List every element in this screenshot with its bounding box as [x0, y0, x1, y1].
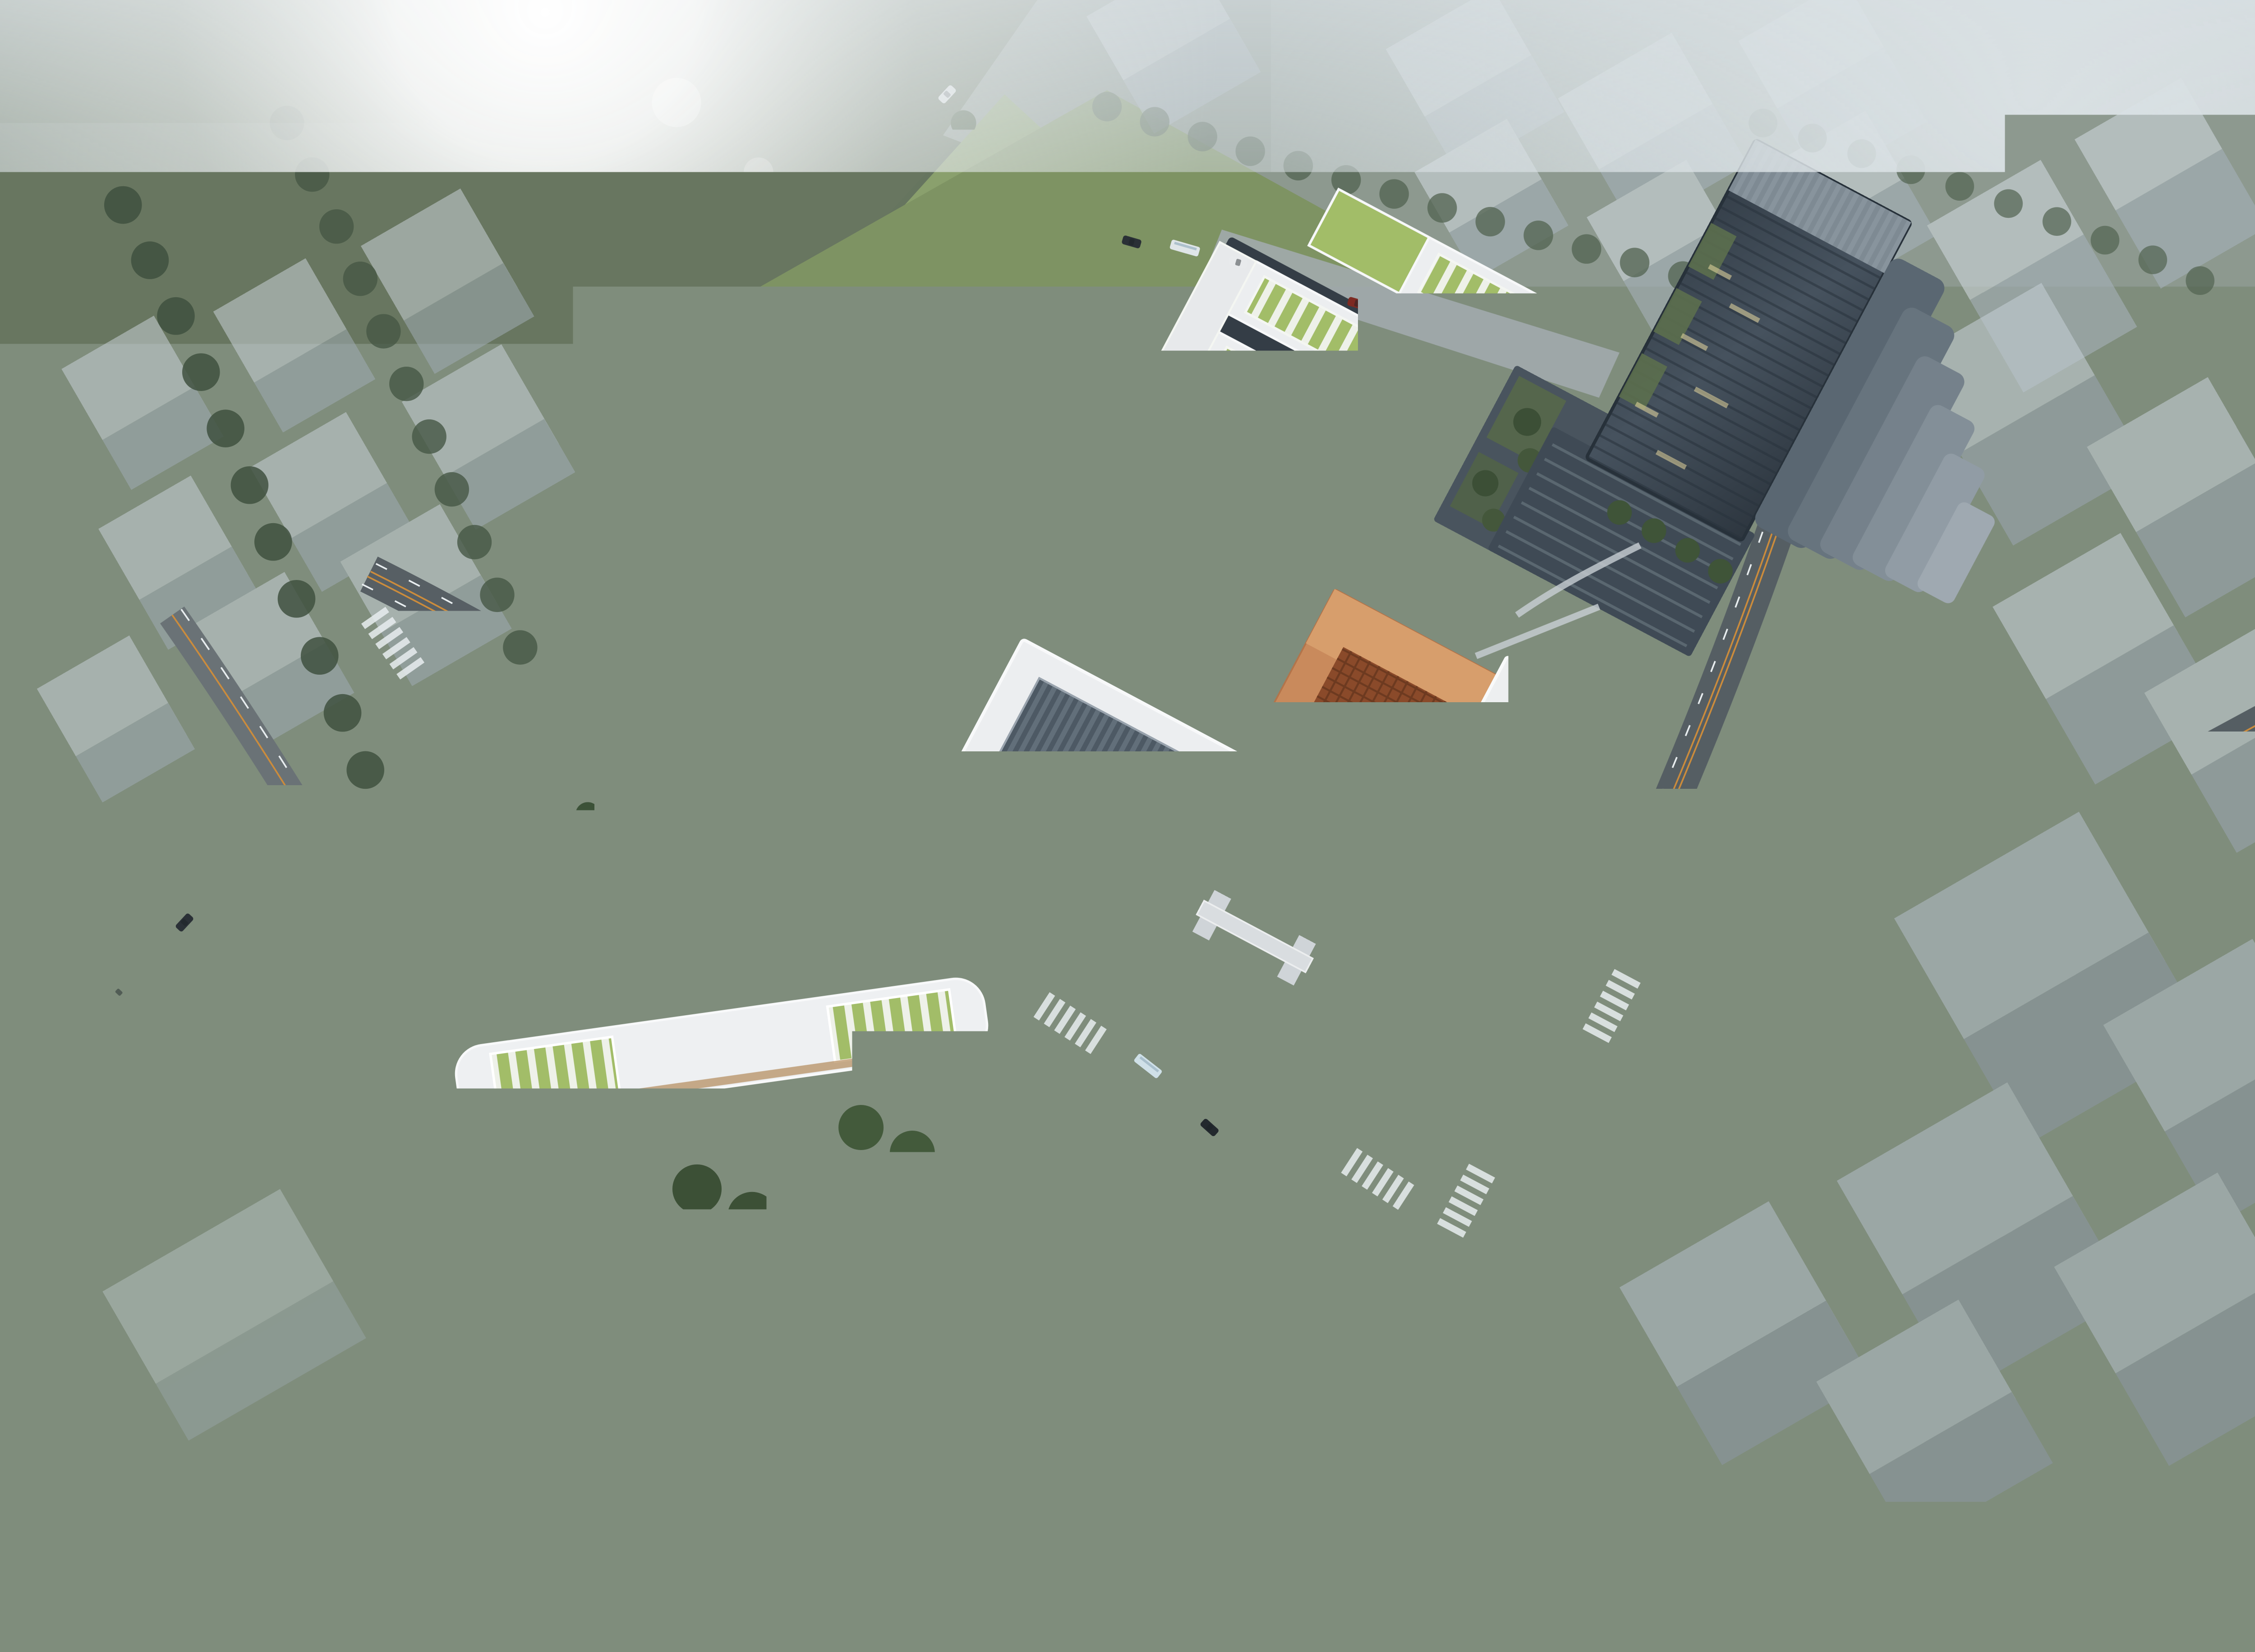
atmosphere	[0, 0, 2255, 1502]
fog-top-right	[1271, 0, 2255, 779]
aerial-rendering: 温州市实验中学 實 温州市实验中学	[0, 0, 2255, 1502]
sun-flare	[0, 0, 1312, 902]
lens-flare-2	[744, 157, 773, 187]
fog-bottom-left	[0, 984, 656, 1502]
lens-flare-1	[652, 78, 701, 127]
aerial-rendering-canvas: 温州市实验中学 實 温州市实验中学	[0, 0, 2255, 1502]
